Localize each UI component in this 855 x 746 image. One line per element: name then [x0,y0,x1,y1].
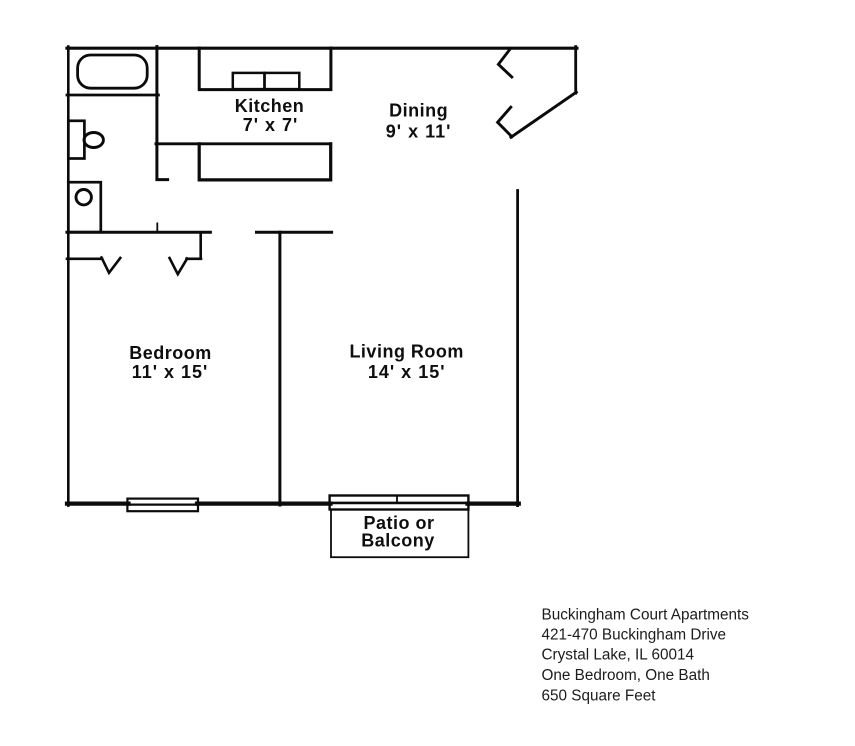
svg-text:Kitchen: Kitchen [235,96,305,116]
svg-text:One Bedroom, One Bath: One Bedroom, One Bath [542,667,710,684]
svg-text:7' x 7': 7' x 7' [243,115,299,135]
svg-text:Balcony: Balcony [361,531,435,551]
svg-text:Dining: Dining [389,101,448,121]
svg-text:Bedroom: Bedroom [129,343,212,363]
svg-text:9' x 11': 9' x 11' [386,122,452,142]
svg-text:14' x 15': 14' x 15' [368,362,446,382]
svg-text:Buckingham Court Apartments: Buckingham Court Apartments [542,606,750,623]
svg-text:650 Square Feet: 650 Square Feet [542,687,657,704]
svg-text:Living Room: Living Room [349,341,464,361]
svg-text:421-470 Buckingham Drive: 421-470 Buckingham Drive [542,627,727,644]
svg-text:11' x 15': 11' x 15' [132,362,209,382]
svg-text:Crystal Lake, IL 60014: Crystal Lake, IL 60014 [542,647,695,664]
